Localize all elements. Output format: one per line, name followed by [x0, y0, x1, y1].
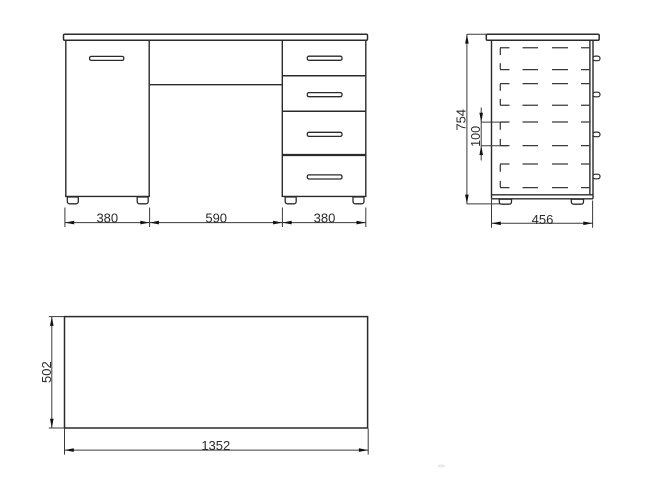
svg-text:502: 502 [39, 361, 54, 383]
svg-text:456: 456 [532, 212, 554, 227]
svg-text:1352: 1352 [201, 438, 230, 453]
svg-text:100: 100 [469, 126, 483, 147]
svg-text:754: 754 [453, 109, 468, 131]
svg-text:590: 590 [205, 210, 227, 225]
svg-text:380: 380 [314, 210, 336, 225]
svg-text:380: 380 [96, 210, 118, 225]
